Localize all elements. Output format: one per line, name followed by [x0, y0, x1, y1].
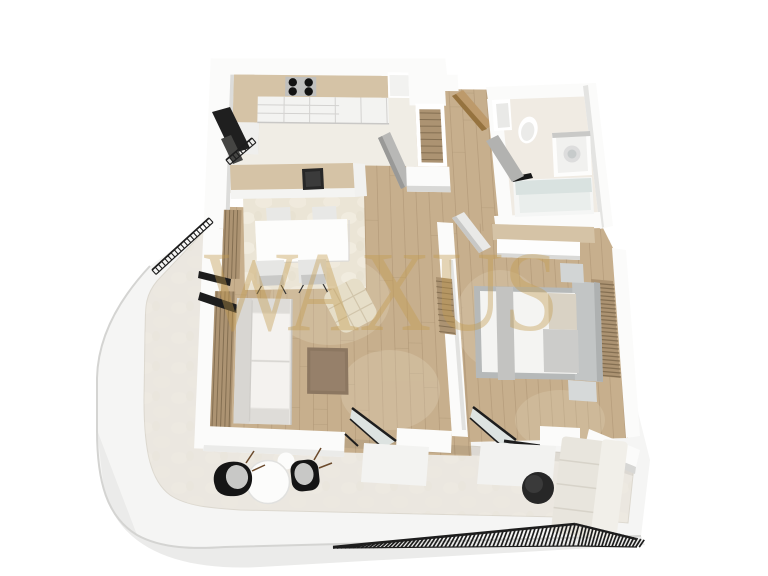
svg-text:WAXUS: WAXUS [204, 228, 559, 355]
